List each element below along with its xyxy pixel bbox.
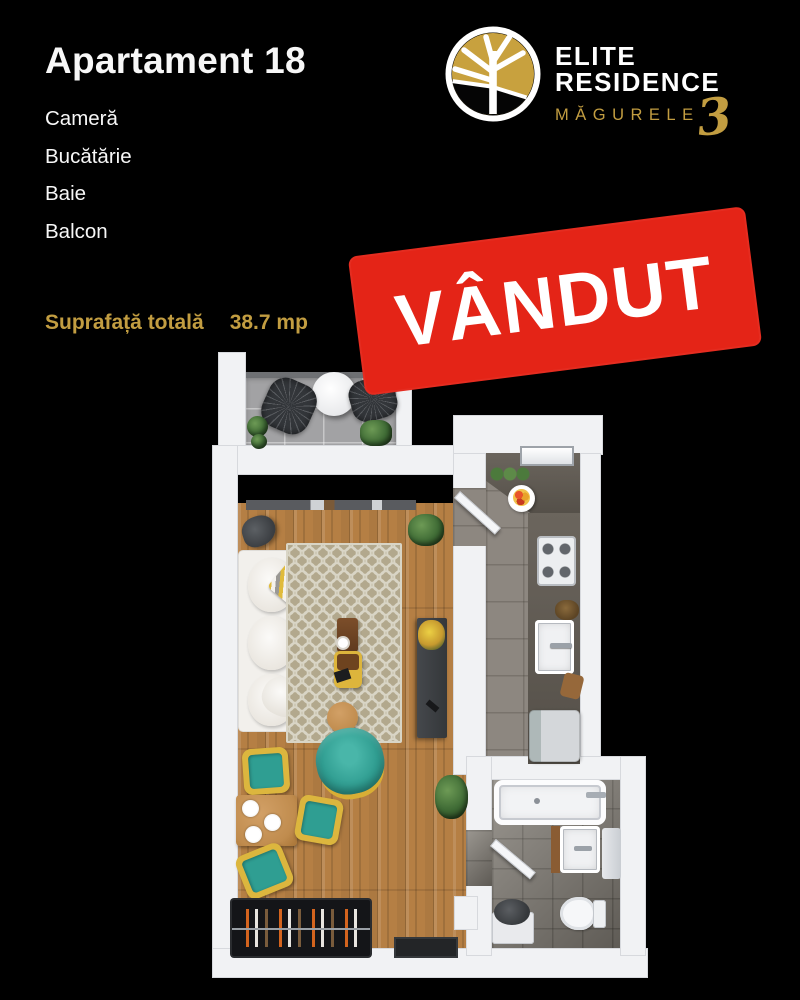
tv-console-flowers — [418, 620, 445, 650]
floorplan-image — [198, 348, 650, 1000]
dining-chair-1-seat — [248, 753, 284, 789]
logo-wordmark: ELITE RESIDENCE MĂGURELE 3 — [555, 24, 731, 136]
room-list-item-baie: Baie — [45, 175, 132, 213]
sold-stamp: VÂNDUT — [348, 206, 763, 396]
room-list-item-camera: Cameră — [45, 100, 132, 138]
dining-chair-2 — [293, 794, 344, 847]
kitchen-faucet — [550, 643, 572, 648]
bathroom-doorway — [466, 830, 492, 886]
bathtub-drain — [534, 798, 540, 804]
total-area-value: 38.7 mp — [230, 311, 308, 335]
dining-chair-2-seat — [300, 800, 337, 839]
dining-chair-1 — [241, 746, 290, 795]
bidet-basin — [494, 899, 530, 925]
kitchen-window — [522, 448, 572, 464]
total-area: Suprafață totală 38.7 mp — [45, 311, 308, 335]
entry-threshold-step — [454, 896, 478, 930]
toilet-tank — [593, 900, 606, 928]
kitchen-herb-plants — [490, 467, 530, 482]
plate-2 — [264, 814, 281, 831]
shoe-cabinet-shelf-edge — [232, 928, 370, 930]
shoe-cabinet — [232, 900, 370, 956]
page-title: Apartament 18 — [45, 40, 306, 82]
total-area-label: Suprafață totală — [45, 311, 204, 335]
kitchen-right-wall — [580, 453, 601, 775]
balcony-plant-2 — [251, 434, 267, 449]
cooktop — [537, 536, 576, 586]
vanity-cabinet-wood — [551, 826, 560, 873]
plate-3 — [245, 826, 262, 843]
balcony-left-wall — [218, 352, 246, 454]
living-plant-right — [435, 775, 468, 819]
bathroom-right-wall — [620, 756, 646, 956]
plate-1 — [242, 800, 259, 817]
living-plant-top — [408, 514, 444, 546]
bathroom-faucet — [574, 846, 592, 851]
room-list: Cameră Bucătărie Baie Balcon — [45, 100, 132, 250]
room-list-item-balcon: Balcon — [45, 213, 132, 251]
apartment-card: Apartament 18 Cameră Bucătărie Baie Balc… — [0, 0, 800, 1000]
living-window-frame — [246, 500, 416, 510]
living-top-wall — [212, 445, 460, 475]
logo-line-elite: ELITE — [555, 43, 731, 69]
left-outer-wall — [212, 445, 238, 978]
balcony-plant-3 — [360, 420, 392, 446]
bathroom-cabinet — [602, 828, 621, 879]
logo-line-location: MĂGURELE 3 — [555, 100, 731, 134]
kitchen-decor-plant — [555, 600, 579, 620]
fridge — [529, 710, 580, 762]
brand-logo: ELITE RESIDENCE MĂGURELE 3 — [443, 24, 773, 136]
room-list-item-bucatarie: Bucătărie — [45, 138, 132, 176]
logo-phase-number: 3 — [695, 98, 733, 135]
bathtub-faucet — [586, 792, 606, 798]
coffee-cup — [338, 638, 348, 648]
doormat — [394, 937, 458, 958]
logo-location-text: MĂGURELE — [555, 100, 700, 125]
bathtub — [494, 780, 606, 825]
fruit — [513, 489, 530, 506]
tree-logo-icon — [443, 24, 543, 124]
sold-stamp-label: VÂNDUT — [391, 238, 720, 363]
dining-chair-3-seat — [241, 848, 288, 893]
toilet-bowl — [560, 897, 596, 930]
